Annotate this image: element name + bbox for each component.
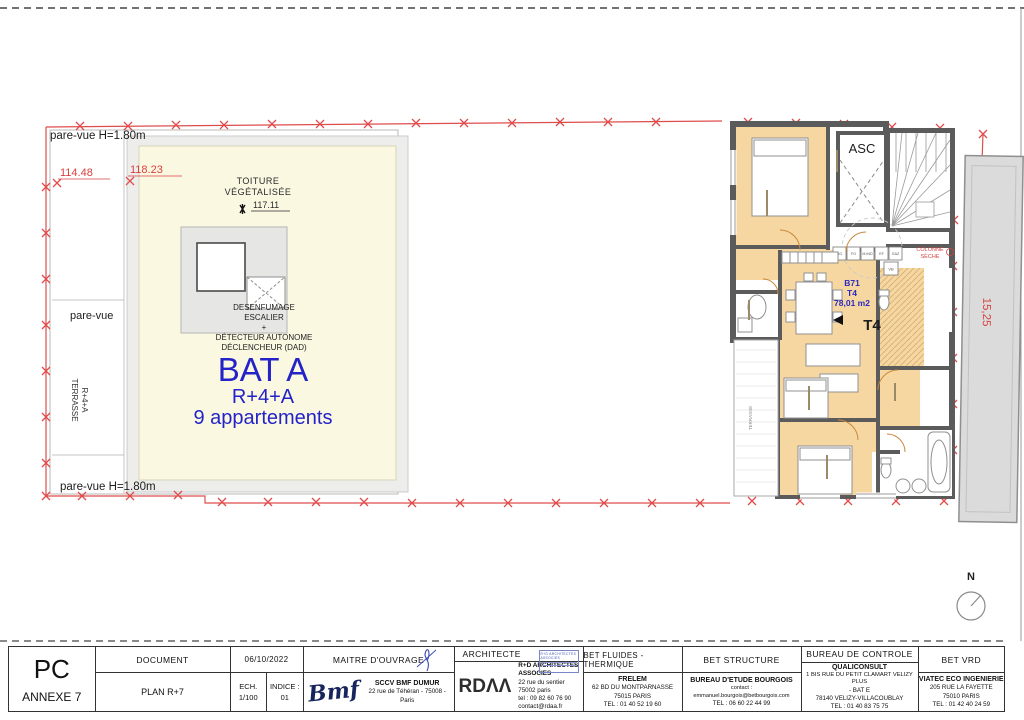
- architect-logo: RDΛΛ: [459, 676, 512, 698]
- document-cell: DOCUMENT PLAN R+7: [96, 647, 231, 711]
- bureau-controle-line-2: 78140 VELIZY-VILLACOUBLAY: [816, 695, 904, 703]
- pare-vue-bottom-label: pare-vue H=1.80m: [60, 481, 156, 493]
- terrasse-label-line1: TERRASSE: [70, 378, 79, 421]
- svg-text:EF: EF: [879, 252, 884, 256]
- building-floors: R+4+A: [232, 386, 295, 408]
- bet-fluides-line-1: 75015 PARIS: [614, 693, 651, 701]
- architect-line-0: 22 rue du sentier: [518, 679, 578, 687]
- smoke-label-plus: +: [262, 323, 267, 332]
- bet-fluides-name: FRELEM: [618, 675, 647, 684]
- indice-value: 01: [281, 692, 289, 703]
- document-name: PLAN R+7: [96, 673, 230, 711]
- terrasse-label-line2: R+4+A: [80, 388, 89, 414]
- svg-text:M.IND: M.IND: [862, 252, 873, 256]
- staircase: [888, 131, 952, 230]
- building-title: BAT A: [218, 351, 309, 388]
- scale-value: 1/100: [239, 692, 258, 703]
- owner-logo: Bmf: [306, 676, 360, 707]
- architect-stamp-text: R+D ARCHITECTES ASSOCIES: [541, 652, 577, 661]
- smoke-label-3: DÉTECTEUR AUTONOME: [216, 333, 313, 342]
- pare-vue-left-label: pare-vue: [70, 310, 113, 322]
- owner-header-label: MAITRE D'OUVRAGE: [333, 655, 424, 665]
- apt-code: B71: [844, 278, 860, 288]
- roof-level: 117.11: [253, 200, 279, 210]
- skylight: [197, 243, 245, 291]
- plan-canvas: pare-vue H=1.80m 114.48 118.23 pare-vue …: [0, 0, 1024, 645]
- scale-cell: ECH. 1/100: [231, 673, 268, 711]
- architect-header: ARCHITECTE R+D ARCHITECTES ASSOCIES: [455, 647, 583, 662]
- drawing-sheet: pare-vue H=1.80m 114.48 118.23 pare-vue …: [0, 0, 1024, 720]
- side-terrace-label: TERRASSE: [748, 406, 753, 430]
- level-114: 114.48: [60, 167, 93, 179]
- date-scale-cell: 06/10/2022 ECH. 1/100 INDICE : 01: [231, 647, 304, 711]
- north-label: N: [967, 571, 975, 583]
- smoke-label-2: ESCALIER: [244, 313, 284, 322]
- bet-vrd-cell: BET VRD VIATEC ECO INGENIERIE 205 RUE LA…: [919, 647, 1005, 711]
- bet-structure-line-0: contact : emmanuel.bourgois@betbourgois.…: [683, 685, 801, 700]
- bet-vrd-line-0: 205 RUE LA FAYETTE: [930, 684, 993, 692]
- architect-line-1: 75002 paris: [518, 687, 578, 695]
- pare-vue-top-label: pare-vue H=1.80m: [50, 130, 146, 142]
- apartment-plan: ASC COLONNE SÈCHE SG FO M.IND EF: [731, 124, 954, 498]
- architect-line-3: contact@rdaa.fr: [518, 703, 578, 711]
- bureau-controle-header: BUREAU DE CONTROLE: [802, 647, 918, 663]
- bureau-controle-line-0: 1 BIS RUE DU PETIT CLAMART VELIZY PLUS: [802, 672, 918, 687]
- apt-type: T4: [847, 288, 857, 298]
- owner-header: MAITRE D'OUVRAGE: [304, 647, 454, 673]
- svg-text:GAZ: GAZ: [892, 252, 900, 256]
- bureau-controle-line-3: TEL : 01 40 83 75 75: [831, 703, 889, 711]
- title-block: PC ANNEXE 7 DOCUMENT PLAN R+7 06/10/2022…: [8, 646, 1005, 712]
- elevator-label: ASC: [849, 141, 876, 156]
- bet-structure-header: BET STRUCTURE: [683, 647, 801, 673]
- elevator-shaft: ASC: [838, 133, 886, 225]
- sheet-id-cell: PC ANNEXE 7: [9, 647, 96, 711]
- dimension-15-25: 15,25: [980, 298, 993, 327]
- sheet-type: PC: [34, 654, 70, 685]
- signature-icon: [414, 647, 440, 672]
- level-118: 118.23: [130, 164, 163, 176]
- bet-vrd-line-2: TEL : 01 42 40 24 59: [932, 701, 990, 709]
- bureau-controle-name: QUALICONSULT: [832, 663, 887, 672]
- document-header: DOCUMENT: [96, 647, 230, 673]
- owner-name: SCCV BMF DUMUR: [365, 679, 450, 688]
- smoke-label-1: DESENFUMAGE: [233, 303, 295, 312]
- adjacent-building: [959, 156, 1023, 523]
- bet-structure-name: BUREAU D'ETUDE BOURGOIS: [690, 676, 792, 685]
- apt-type-big: T4: [863, 317, 881, 334]
- roof-label-line2: VÉGÉTALISÉE: [225, 187, 292, 197]
- roof-label-line1: TOITURE: [237, 176, 280, 186]
- bet-fluides-line-2: TEL : 01 40 52 19 60: [604, 701, 662, 709]
- side-terrace: TERRASSE: [734, 340, 778, 496]
- dry-column-line1: COLONNE: [916, 247, 944, 253]
- indice-cell: INDICE : 01: [267, 673, 303, 711]
- bet-structure-line-1: TEL : 06 60 22 44 99: [713, 700, 771, 708]
- bureau-controle-cell: BUREAU DE CONTROLE QUALICONSULT 1 BIS RU…: [802, 647, 919, 711]
- dry-column-line2: SÈCHE: [921, 253, 940, 260]
- owner-cell: MAITRE D'OUVRAGE Bmf SCCV BMF DUMUR 22 r…: [304, 647, 455, 711]
- indice-label: INDICE :: [270, 681, 300, 692]
- bureau-controle-line-1: - BAT E: [849, 687, 870, 695]
- north-arrow: N: [957, 571, 985, 620]
- architect-cell: ARCHITECTE R+D ARCHITECTES ASSOCIES RDΛΛ…: [455, 647, 584, 711]
- sheet-annex: ANNEXE 7: [22, 690, 81, 704]
- bet-vrd-name: VIATEC ECO INGENIERIE: [919, 675, 1004, 684]
- bet-vrd-line-1: 75010 PARIS: [943, 693, 980, 701]
- architect-line-2: tel : 09 82 60 76 90: [518, 695, 578, 703]
- scale-label: ECH.: [239, 681, 257, 692]
- architect-header-label: ARCHITECTE: [463, 649, 521, 659]
- bet-vrd-header: BET VRD: [919, 647, 1005, 673]
- building-units: 9 appartements: [194, 407, 333, 429]
- sheet-date: 06/10/2022: [231, 647, 303, 673]
- apt-area: 78,01 m2: [834, 298, 870, 308]
- bet-fluides-line-0: 62 BD DU MONTPARNASSE: [592, 684, 673, 692]
- bet-fluides-header: BET FLUIDES - THERMIQUE: [584, 647, 682, 673]
- owner-address: 22 rue de Téhéran - 75008 - Paris: [365, 688, 450, 704]
- bet-structure-cell: BET STRUCTURE BUREAU D'ETUDE BOURGOIS co…: [683, 647, 802, 711]
- bet-fluides-cell: BET FLUIDES - THERMIQUE FRELEM 62 BD DU …: [584, 647, 683, 711]
- svg-text:VB: VB: [888, 267, 894, 272]
- svg-text:FO: FO: [851, 252, 856, 256]
- architect-stamp: R+D ARCHITECTES ASSOCIES: [539, 650, 579, 673]
